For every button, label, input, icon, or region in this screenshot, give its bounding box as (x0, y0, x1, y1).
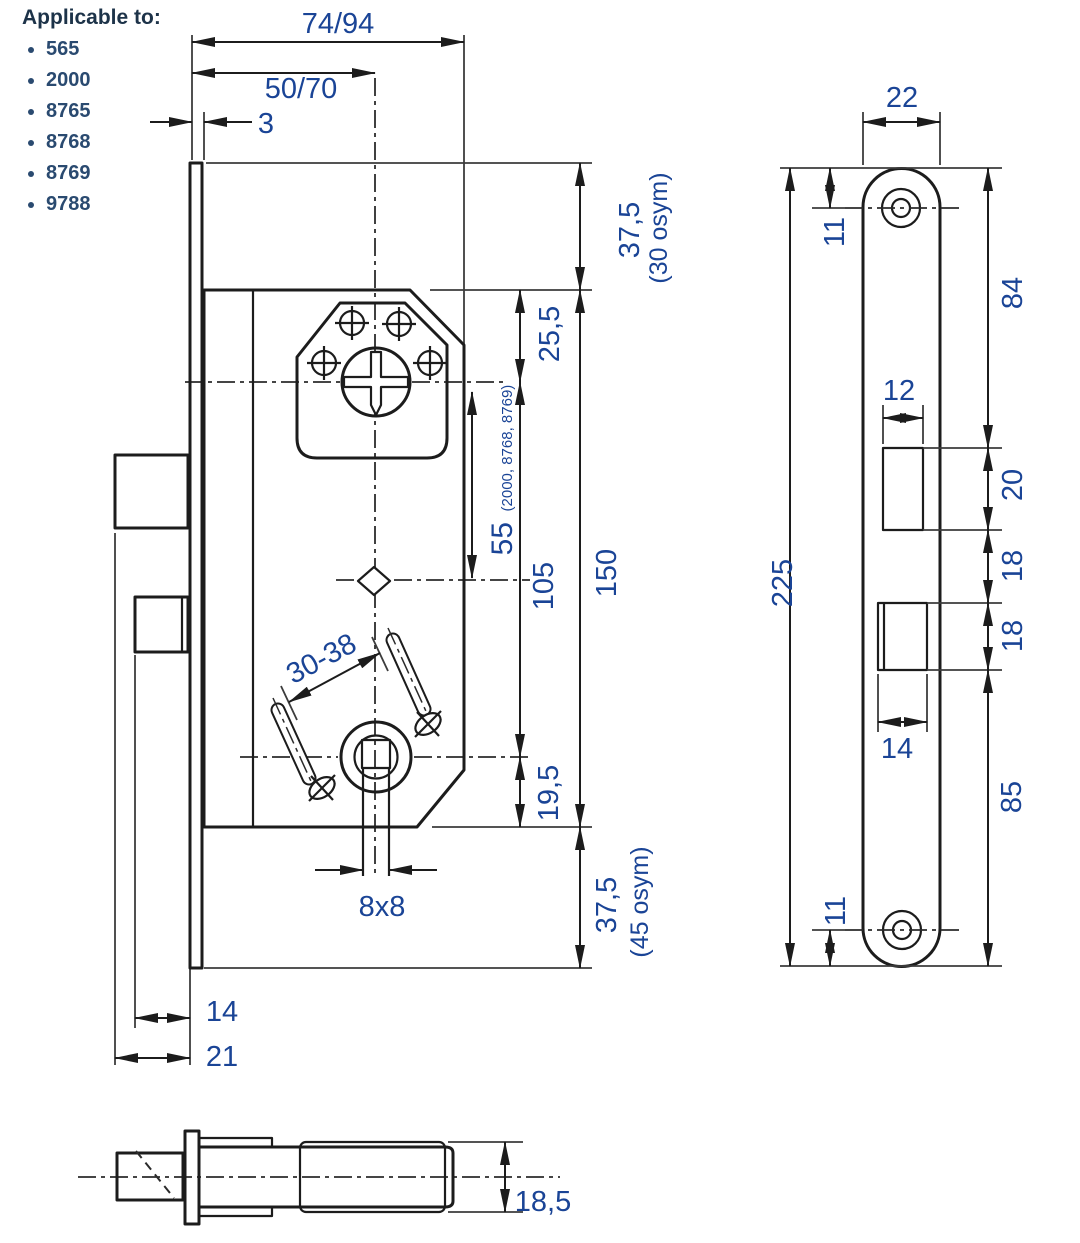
dim-follower-to-bottom: 19,5 (533, 765, 565, 821)
dim-bolt-to-bottom: 85 (996, 781, 1028, 813)
dim-latch-cutout-height: 20 (997, 469, 1029, 501)
dim-bottom-screw-offset: 11 (820, 896, 852, 926)
dim-bottom-margin-note: (45 osym) (626, 846, 654, 957)
side-dimension: 18,5 (448, 1142, 571, 1218)
dim-faceplate-thickness: 3 (258, 108, 274, 140)
center-diamond-marker (358, 567, 390, 595)
front-dimensions: 74/94 50/70 3 37,5 (30 osym) 25,5 55 (20… (115, 8, 673, 1073)
dim-latch-to-bolt-gap: 18 (997, 550, 1029, 582)
spindle-square (362, 740, 390, 768)
dim-backset: 50/70 (265, 73, 338, 105)
faceplate-dimensions: 22 11 225 84 12 20 18 18 14 85 (767, 82, 1029, 966)
dim-plate-length: 225 (767, 559, 799, 607)
dim-case-width: 74/94 (302, 8, 375, 40)
dim-latch-throw: 21 (206, 1041, 238, 1073)
dim-top-to-latch: 84 (997, 277, 1029, 309)
dim-case-thickness: 18,5 (515, 1186, 571, 1218)
faceplate-edge (190, 163, 202, 968)
dim-bolt-cutout-height: 18 (997, 620, 1029, 652)
dim-top-margin-note: (30 osym) (645, 172, 673, 283)
dim-bolt-cutout-width: 14 (881, 733, 913, 765)
latch-bevel-hidden-line (136, 1151, 174, 1198)
faceplate-outline (863, 168, 940, 966)
drawing-sheet: Applicable to: 565 2000 8765 8768 8769 9… (0, 0, 1080, 1243)
dim-case-height: 150 (591, 549, 623, 597)
dim-plate-width: 22 (886, 82, 918, 114)
dim-bottom-margin: 37,5 (591, 877, 623, 933)
follower-hub (341, 722, 411, 876)
latch-bolt (115, 455, 188, 528)
dim-cylinder-to-hub: 55 (2000, 8768, 8769) (486, 385, 519, 556)
dim-latch-cutout-width: 12 (883, 375, 915, 407)
side-view: 18,5 (78, 1131, 571, 1224)
dim-adjust-range: 30-38 (281, 628, 362, 691)
dim-cylinder-from-top: 25,5 (534, 306, 566, 362)
latch-cutout (883, 448, 923, 530)
lock-drawing: 74/94 50/70 3 37,5 (30 osym) 25,5 55 (20… (0, 0, 1080, 1243)
bolt-cutout (878, 603, 927, 670)
faceplate-view: 22 11 225 84 12 20 18 18 14 85 (767, 82, 1029, 966)
centerlines (185, 78, 530, 878)
dim-spindle-size: 8x8 (359, 891, 406, 923)
dim-deadbolt-throw: 14 (206, 996, 238, 1028)
slot-screw-upper (411, 709, 444, 740)
dim-top-screw-offset: 11 (819, 217, 851, 247)
front-view: 74/94 50/70 3 37,5 (30 osym) 25,5 55 (20… (115, 8, 673, 1073)
deadbolt (135, 597, 188, 652)
dim-top-margin: 37,5 (614, 202, 646, 258)
faceplate-extension-lines (780, 112, 1002, 966)
dim-cylinder-to-follower: 105 (528, 562, 560, 610)
